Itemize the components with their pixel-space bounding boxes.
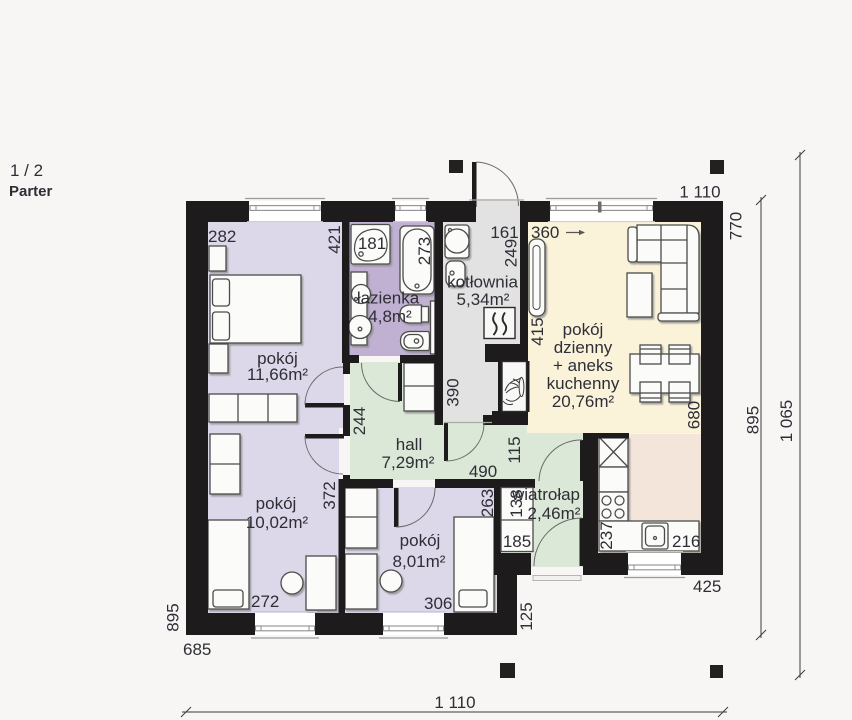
svg-text:685: 685 — [183, 640, 211, 659]
svg-text:1 110: 1 110 — [434, 693, 475, 712]
svg-text:1 065: 1 065 — [777, 400, 796, 443]
svg-text:kotłownia: kotłownia — [447, 273, 518, 292]
svg-text:10,02m²: 10,02m² — [246, 513, 309, 532]
svg-text:kuchenny: kuchenny — [547, 374, 620, 393]
svg-text:dzienny: dzienny — [554, 338, 613, 357]
svg-text:680: 680 — [685, 401, 704, 429]
svg-text:20,76m²: 20,76m² — [552, 392, 615, 411]
svg-text:895: 895 — [744, 406, 763, 434]
svg-text:pokój: pokój — [563, 320, 604, 339]
svg-text:249: 249 — [502, 239, 521, 267]
svg-text:1 110: 1 110 — [679, 183, 720, 202]
svg-text:125: 125 — [517, 602, 536, 630]
svg-text:770: 770 — [727, 212, 746, 240]
svg-text:360: 360 — [531, 223, 559, 242]
svg-text:hall: hall — [396, 435, 422, 454]
svg-text:138: 138 — [507, 489, 526, 517]
svg-text:8,01m²: 8,01m² — [393, 552, 446, 571]
svg-text:11,66m²: 11,66m² — [247, 365, 308, 384]
svg-text:+ aneks: + aneks — [553, 356, 613, 375]
svg-text:237: 237 — [597, 521, 616, 549]
svg-text:Parter: Parter — [9, 183, 53, 200]
svg-text:490: 490 — [469, 462, 497, 481]
svg-text:425: 425 — [693, 577, 721, 596]
svg-text:282: 282 — [208, 227, 236, 246]
svg-text:2,46m²: 2,46m² — [528, 504, 581, 523]
svg-text:185: 185 — [503, 532, 531, 551]
svg-text:244: 244 — [350, 407, 369, 435]
svg-text:łazienka: łazienka — [357, 289, 420, 308]
svg-text:273: 273 — [415, 237, 434, 265]
svg-text:421: 421 — [325, 225, 344, 253]
svg-text:pokój: pokój — [256, 494, 297, 513]
svg-text:263: 263 — [478, 489, 497, 517]
svg-text:895: 895 — [164, 603, 183, 631]
svg-text:181: 181 — [358, 234, 386, 253]
svg-text:415: 415 — [528, 317, 547, 345]
svg-text:390: 390 — [444, 378, 463, 406]
svg-text:5,34m²: 5,34m² — [457, 290, 510, 309]
svg-text:216: 216 — [672, 532, 700, 551]
svg-text:1 / 2: 1 / 2 — [10, 161, 43, 180]
svg-text:7,29m²: 7,29m² — [382, 453, 435, 472]
svg-text:306: 306 — [424, 594, 452, 613]
svg-text:pokój: pokój — [400, 531, 441, 550]
svg-text:4,8m²: 4,8m² — [368, 307, 412, 326]
svg-text:272: 272 — [251, 592, 279, 611]
svg-text:115: 115 — [505, 436, 524, 463]
svg-text:372: 372 — [320, 481, 339, 509]
